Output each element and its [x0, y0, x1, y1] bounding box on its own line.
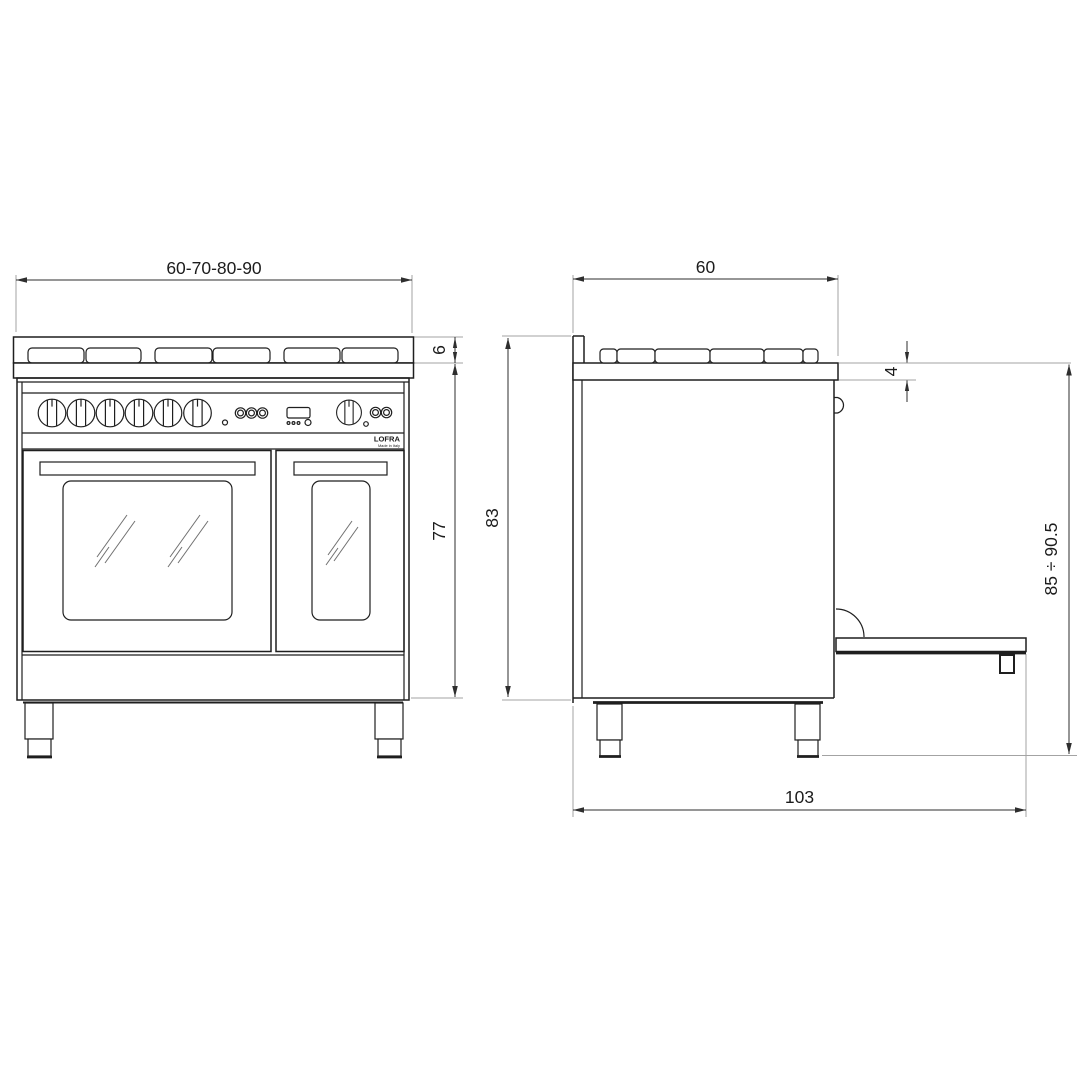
brand-subtitle: Made in Italy: [378, 443, 400, 448]
side-door-open-depth-dimension: 103: [573, 787, 1026, 810]
burner-grate: [86, 348, 141, 363]
timer-dot: [297, 422, 300, 425]
side-door-open-depth-label: 103: [785, 787, 814, 807]
burner-grate: [28, 348, 84, 363]
side-overall-height-dimension: 85 ÷ 90.5: [1041, 365, 1069, 755]
front-hob: [14, 337, 414, 378]
main-oven-window: [63, 481, 232, 620]
oven-knob: [337, 400, 362, 425]
grate-profile: [803, 349, 818, 363]
leg-foot: [378, 739, 401, 756]
timer-dot: [292, 422, 295, 425]
leg: [375, 703, 403, 739]
burner-grate: [284, 348, 340, 363]
control-knob: [125, 399, 153, 427]
front-hob-edge-label: 6: [429, 345, 449, 355]
push-button: [370, 407, 380, 417]
front-body-height-label: 77: [429, 521, 449, 540]
leg: [25, 703, 53, 739]
door-handle-profile: [1000, 655, 1014, 673]
burner-grate: [342, 348, 398, 363]
cooker-dimension-drawing: 60-70-80-90 6 77: [0, 0, 1080, 1080]
push-button: [381, 407, 391, 417]
leg: [795, 704, 820, 740]
hob-edge-profile: [573, 363, 838, 380]
door-swing-arc: [836, 609, 864, 637]
control-knob: [154, 399, 182, 427]
timer-display: [287, 408, 310, 419]
grate-profile: [600, 349, 617, 363]
front-width-dimension: 60-70-80-90: [16, 258, 412, 280]
side-legs: [597, 704, 820, 757]
grate-profile: [617, 349, 655, 363]
side-overall-height-label: 85 ÷ 90.5: [1041, 523, 1061, 596]
control-knob: [38, 399, 66, 427]
hob-front-edge: [14, 363, 414, 378]
side-cooker-profile: [573, 336, 844, 703]
side-view: 60 4 83 85 ÷ 90.5 103: [482, 257, 1077, 817]
grate-profile: [710, 349, 764, 363]
oven-doors: [23, 451, 404, 652]
front-width-label: 60-70-80-90: [166, 258, 262, 278]
side-depth-dimension: 60: [573, 257, 838, 279]
side-depth-label: 60: [696, 257, 716, 277]
open-oven-door: [836, 609, 1026, 673]
front-body: [17, 378, 409, 703]
front-legs: [25, 703, 403, 757]
push-button: [257, 408, 267, 418]
front-view: 60-70-80-90 6 77: [14, 258, 464, 757]
glass-reflection: [326, 521, 358, 565]
timer-dot: [287, 422, 290, 425]
grate-profile: [764, 349, 803, 363]
push-button: [235, 408, 245, 418]
side-worktop-edge-dimension: 4: [881, 341, 909, 402]
front-hob-edge-dimension: 6: [429, 337, 457, 363]
glass-reflection: [168, 515, 208, 567]
second-oven-handle: [294, 462, 387, 475]
arrowhead: [905, 352, 909, 363]
leg-foot: [798, 740, 818, 756]
arrowhead: [453, 337, 457, 348]
leg-foot: [28, 739, 51, 756]
leg: [597, 704, 622, 740]
control-knob: [184, 399, 212, 427]
technical-drawing-canvas: 60-70-80-90 6 77: [0, 0, 1080, 1080]
leg-foot: [600, 740, 620, 756]
control-knob: [96, 399, 124, 427]
control-panel: LOFRA Made in Italy: [38, 399, 400, 448]
door-panel: [836, 638, 1026, 652]
main-oven-handle: [40, 462, 255, 475]
timer-button: [305, 420, 311, 426]
burner-grate: [155, 348, 212, 363]
side-height-label: 83: [482, 508, 502, 527]
control-knob: [67, 399, 95, 427]
push-button: [246, 408, 256, 418]
indicator-light: [364, 422, 369, 427]
arrowhead: [905, 380, 909, 391]
burner-grate: [213, 348, 270, 363]
grate-profile: [655, 349, 710, 363]
side-worktop-edge-label: 4: [881, 366, 901, 376]
front-body-height-dimension: 77: [429, 364, 455, 697]
indicator-light: [223, 420, 228, 425]
side-knob-profile: [834, 398, 844, 414]
side-height-dimension: 83: [482, 338, 508, 697]
arrowhead: [453, 352, 457, 363]
glass-reflection: [95, 515, 135, 567]
